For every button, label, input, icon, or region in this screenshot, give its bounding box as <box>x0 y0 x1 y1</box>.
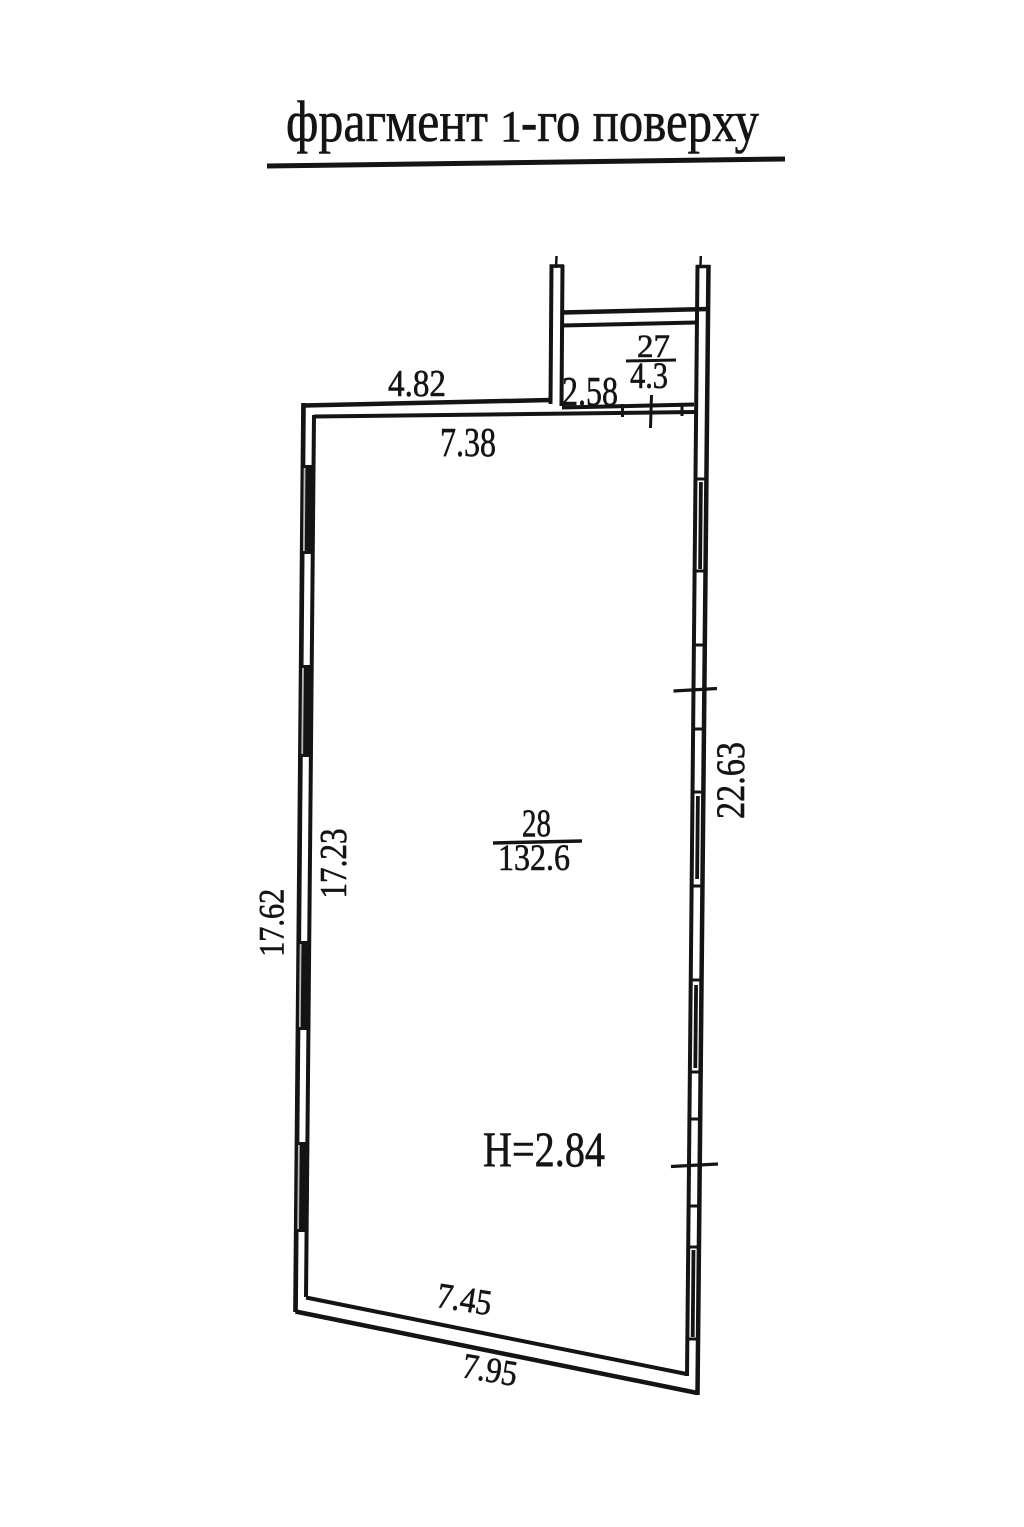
svg-text:1: 1 <box>500 102 522 151</box>
svg-text:4.3: 4.3 <box>630 356 668 397</box>
svg-text:17.23: 17.23 <box>313 829 355 899</box>
svg-text:H=2.84: H=2.84 <box>483 1121 605 1177</box>
svg-text:7.45: 7.45 <box>434 1275 495 1323</box>
svg-text:17.62: 17.62 <box>251 889 291 957</box>
svg-text:4.82: 4.82 <box>388 363 446 405</box>
svg-text:2.58: 2.58 <box>562 368 618 414</box>
svg-text:132.6: 132.6 <box>498 838 570 879</box>
svg-text:фрагмент: фрагмент <box>286 89 488 154</box>
svg-text:22.63: 22.63 <box>708 742 753 819</box>
svg-text:7.38: 7.38 <box>440 419 496 465</box>
svg-text:-го поверху: -го поверху <box>521 89 759 154</box>
